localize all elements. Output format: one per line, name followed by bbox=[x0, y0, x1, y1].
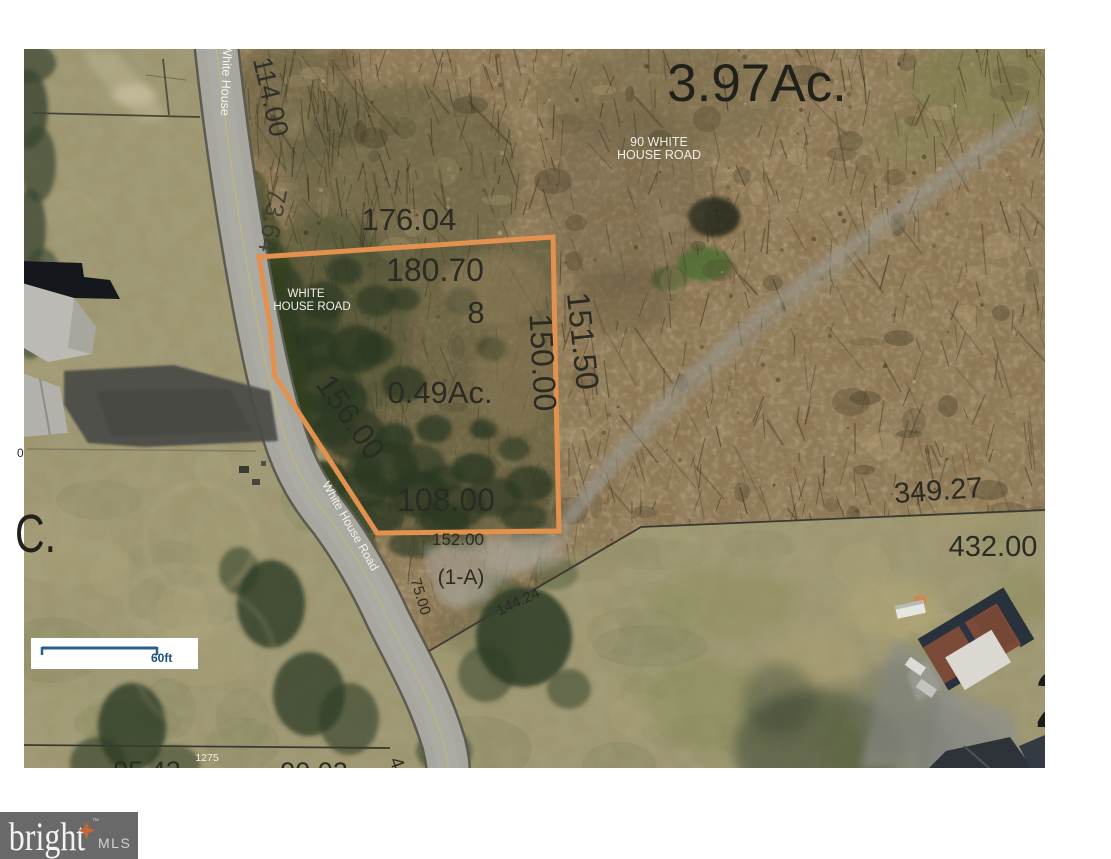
svg-text:60ft: 60ft bbox=[151, 651, 172, 665]
svg-text:0.49Ac.: 0.49Ac. bbox=[387, 375, 492, 410]
svg-text:bright: bright bbox=[9, 815, 85, 859]
svg-text:176.04: 176.04 bbox=[362, 202, 457, 237]
svg-text:White House: White House bbox=[218, 49, 234, 116]
svg-text:152.00: 152.00 bbox=[432, 530, 484, 549]
svg-text:DALEWOOD: DALEWOOD bbox=[191, 766, 267, 768]
svg-text:8: 8 bbox=[467, 295, 484, 330]
svg-text:95.42: 95.42 bbox=[113, 756, 181, 768]
svg-text:180.70: 180.70 bbox=[386, 252, 484, 288]
svg-text:150.00: 150.00 bbox=[522, 313, 563, 413]
svg-text:(1-A): (1-A) bbox=[438, 566, 485, 589]
svg-text:90 WHITE: 90 WHITE bbox=[630, 135, 688, 149]
svg-text:349.27: 349.27 bbox=[893, 472, 984, 510]
svg-text:432.00: 432.00 bbox=[949, 531, 1038, 563]
svg-text:MLS: MLS bbox=[98, 835, 131, 851]
svg-text:1275: 1275 bbox=[195, 752, 219, 764]
svg-text:2: 2 bbox=[1034, 655, 1045, 744]
svg-text:HOUSE ROAD: HOUSE ROAD bbox=[617, 148, 701, 162]
svg-text:WHITE: WHITE bbox=[287, 288, 324, 300]
svg-text:90.02: 90.02 bbox=[280, 757, 348, 768]
svg-text:™: ™ bbox=[92, 818, 99, 825]
svg-text:HOUSE ROAD: HOUSE ROAD bbox=[273, 301, 350, 313]
svg-text:108.00: 108.00 bbox=[397, 482, 495, 518]
svg-text:3.97Ac.: 3.97Ac. bbox=[667, 54, 847, 113]
